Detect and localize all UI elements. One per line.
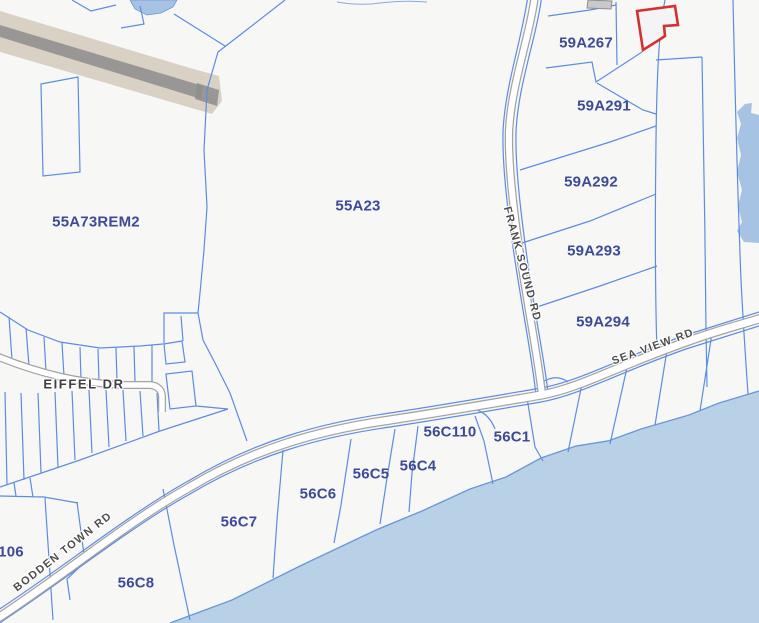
runway-stripe [0, 25, 203, 99]
pond-north [130, 0, 177, 15]
parcel-label: 56C8 [118, 575, 155, 592]
runway [0, 11, 222, 114]
road-label-eiffel-dr: EIFFEL DR [43, 377, 124, 392]
parcel-label: 59A292 [564, 174, 618, 191]
parcel-label: 55A73REM2 [52, 214, 140, 231]
parcel-label: 56C1 [494, 429, 531, 446]
parcel-label: 59A293 [567, 243, 621, 260]
parcel-label: 56C6 [300, 486, 337, 503]
parcel-label: 56C110 [424, 424, 477, 441]
selected-parcel[interactable] [637, 6, 678, 50]
parcel-label: 56C4 [400, 458, 437, 475]
parcel-label: 59A294 [576, 314, 630, 331]
parcel-label: 59A267 [559, 35, 613, 52]
pond-edge-line [337, 1, 427, 4]
parcel-label: 106 [0, 544, 24, 561]
parcel-label: 56C5 [353, 466, 390, 483]
building-footprint [587, 0, 612, 9]
parcel-label: 59A291 [577, 98, 631, 115]
map-layers [0, 0, 759, 623]
map-canvas[interactable]: 55A73REM2 55A23 59A267 59A291 59A292 59A… [0, 0, 759, 623]
pond-east [737, 103, 759, 243]
parcel-label: 55A23 [335, 198, 380, 215]
parcel-label: 56C7 [221, 514, 258, 531]
